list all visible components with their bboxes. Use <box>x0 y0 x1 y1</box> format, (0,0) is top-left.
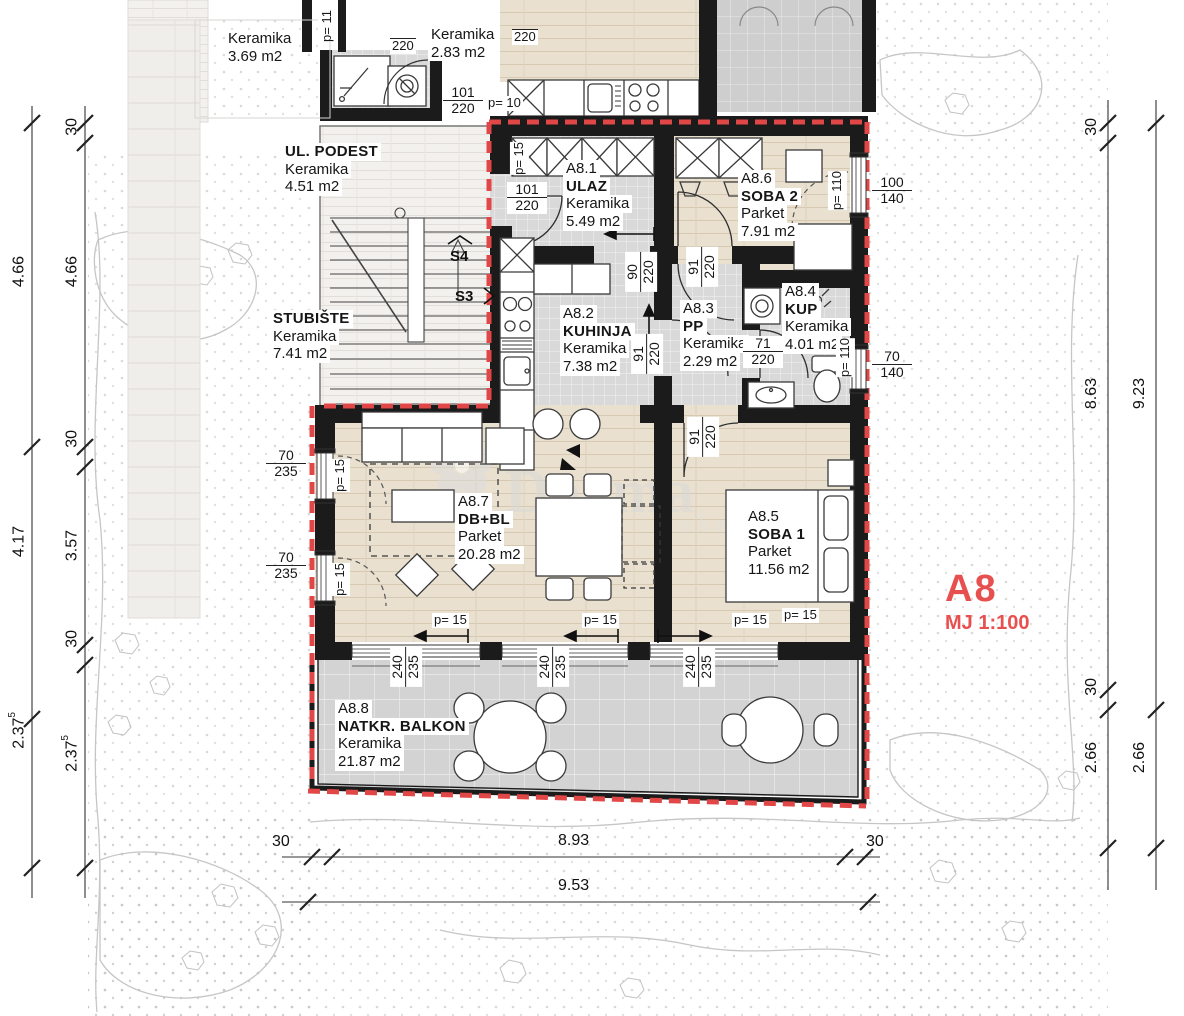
room-area: 11.56 m2 <box>745 561 812 579</box>
unit-title-block: A8 MJ 1:100 <box>945 570 1030 635</box>
dim-70-235: 70235 <box>266 550 306 582</box>
dim-71-220: 71220 <box>743 336 783 368</box>
dim-p15: p= 15 <box>582 613 619 628</box>
chain-left-outer-0: 4.66 <box>7 256 28 287</box>
chain-left-inner-1: 4.66 <box>60 256 81 287</box>
room-area: 7.41 m2 <box>270 345 330 363</box>
dim-90-220: 90220 <box>625 252 657 292</box>
room-code: A8.5 <box>745 508 782 526</box>
room-material: Keramika <box>563 195 632 213</box>
room-area: 5.49 m2 <box>563 213 623 231</box>
chain-right-inner-0: 30 <box>1083 118 1101 136</box>
room-name: STUBIŠTE <box>270 310 353 328</box>
dim-240-235: 240235 <box>390 647 422 687</box>
room-area: 2.83 m2 <box>428 44 488 62</box>
label-balkon: A8.8 NATKR. BALKON Keramika 21.87 m2 <box>335 700 469 771</box>
dim-p15: p= 15 <box>432 613 469 628</box>
chain-right-inner-1: 8.63 <box>1083 378 1101 409</box>
floor-plan-sheet: Dogma nekretnine <box>0 0 1184 1016</box>
room-area: 7.91 m2 <box>738 223 798 241</box>
room-name: KUP <box>782 301 821 319</box>
chain-left-outer-2: 2.375 <box>7 712 28 749</box>
room-material: Keramika <box>225 30 294 48</box>
dim-100-140: 100140 <box>872 175 912 207</box>
room-name: DB+BL <box>455 511 513 529</box>
room-name: NATKR. BALKON <box>335 718 469 736</box>
unit-code: A8 <box>945 570 1030 608</box>
chain-left-inner-0: 30 <box>60 118 81 136</box>
chain-right-outer-0: 9.23 <box>1131 378 1149 409</box>
dim-91-220: 91220 <box>687 417 719 457</box>
room-code: A8.2 <box>560 305 597 323</box>
chain-left-outer-1: 4.17 <box>7 526 28 557</box>
room-area: 20.28 m2 <box>455 546 524 564</box>
chain-bottom-inner-2: 30 <box>866 833 884 851</box>
dim-p15: p= 15 <box>510 142 529 175</box>
room-code: A8.4 <box>782 283 819 301</box>
room-code: A8.3 <box>680 300 717 318</box>
label-keramika-283: Keramika 2.83 m2 <box>428 26 497 61</box>
dim-p15: p= 15 <box>331 459 350 492</box>
chain-left-inner-3: 3.57 <box>60 530 81 561</box>
washing-machine-icon <box>388 66 426 106</box>
label-soba1: A8.5 SOBA 1 Parket 11.56 m2 <box>745 508 812 579</box>
coffee-table <box>392 490 454 522</box>
dim-p10: p= 10 <box>486 96 523 111</box>
label-pp: A8.3 PP Keramika 2.29 m2 <box>680 300 749 371</box>
label-ulaz: A8.1 ULAZ Keramika 5.49 m2 <box>563 160 632 231</box>
room-material: Keramika <box>428 26 497 44</box>
path-strip <box>128 20 200 618</box>
label-stubiste: STUBIŠTE Keramika 7.41 m2 <box>270 310 353 363</box>
shower-tray-icon <box>334 56 390 106</box>
dim-p15: p= 15 <box>732 613 769 628</box>
room-name: UL. PODEST <box>282 143 381 161</box>
label-keramika-369: Keramika 3.69 m2 <box>225 30 294 65</box>
neighbor-terrace <box>717 0 862 112</box>
chain-left-inner-2: 30 <box>60 430 81 448</box>
dim-240-235: 240235 <box>683 647 715 687</box>
unit-scale: MJ 1:100 <box>945 612 1030 635</box>
room-material: Keramika <box>680 335 749 353</box>
dim-91-220: 91220 <box>631 334 663 374</box>
room-material: Parket <box>455 528 504 546</box>
room-name: ULAZ <box>563 178 610 196</box>
room-area: 3.69 m2 <box>225 48 285 66</box>
room-material: Keramika <box>335 735 404 753</box>
label-ul-podest: UL. PODEST Keramika 4.51 m2 <box>282 143 381 196</box>
room-code: A8.8 <box>335 700 372 718</box>
dim-101-220: 101220 <box>443 85 483 117</box>
room-material: Parket <box>745 543 794 561</box>
chain-right-outer-1: 2.66 <box>1131 742 1149 773</box>
room-name: SOBA 2 <box>738 188 801 206</box>
marker-s4: S4 <box>450 248 468 265</box>
label-dbbl: A8.7 DB+BL Parket 20.28 m2 <box>455 493 524 564</box>
dim-70-140: 70140 <box>872 349 912 381</box>
chain-bottom-outer-0: 9.53 <box>558 877 589 895</box>
room-area: 4.01 m2 <box>782 336 842 354</box>
chain-bottom-inner-1: 8.93 <box>558 832 589 850</box>
dim-p110: p= 110 <box>836 338 855 377</box>
chain-right-inner-2: 30 <box>1083 678 1101 696</box>
room-material: Keramika <box>270 328 339 346</box>
dim-p15: p= 15 <box>782 608 819 623</box>
dim-p11: p= 11 <box>318 10 337 42</box>
room-code: A8.7 <box>455 493 492 511</box>
label-soba2: A8.6 SOBA 2 Parket 7.91 m2 <box>738 170 801 241</box>
room-material: Parket <box>738 205 787 223</box>
neighbor-kitchen-counter <box>508 80 699 116</box>
room-area: 21.87 m2 <box>335 753 404 771</box>
room-code: A8.6 <box>738 170 775 188</box>
room-name: PP <box>680 318 707 336</box>
chain-left-inner-4: 30 <box>60 630 81 648</box>
room-name: KUHINJA <box>560 323 635 341</box>
room-area: 4.51 m2 <box>282 178 342 196</box>
dim-220: 220 <box>390 38 416 54</box>
dim-70-235: 70235 <box>266 448 306 480</box>
room-name: SOBA 1 <box>745 526 808 544</box>
label-kuhinja: A8.2 KUHINJA Keramika 7.38 m2 <box>560 305 635 376</box>
room-material: Keramika <box>782 318 851 336</box>
chain-right-inner-3: 2.66 <box>1083 742 1101 773</box>
dim-91-220: 91220 <box>686 247 718 287</box>
marker-s3: S3 <box>455 288 473 305</box>
room-material: Keramika <box>282 161 351 179</box>
room-material: Keramika <box>560 340 629 358</box>
chain-bottom-inner-0: 30 <box>272 833 290 851</box>
room-code: A8.1 <box>563 160 600 178</box>
plan-canvas: Dogma nekretnine <box>0 0 1184 1016</box>
dim-p110: p= 110 <box>828 171 847 210</box>
dim-p15: p= 15 <box>331 563 350 596</box>
room-area: 7.38 m2 <box>560 358 620 376</box>
dim-240-235: 240235 <box>537 647 569 687</box>
chain-left-inner-5: 2.375 <box>60 735 81 772</box>
dim-220: 220 <box>512 29 538 45</box>
dim-101-220: 101220 <box>507 182 547 214</box>
room-area: 2.29 m2 <box>680 353 740 371</box>
